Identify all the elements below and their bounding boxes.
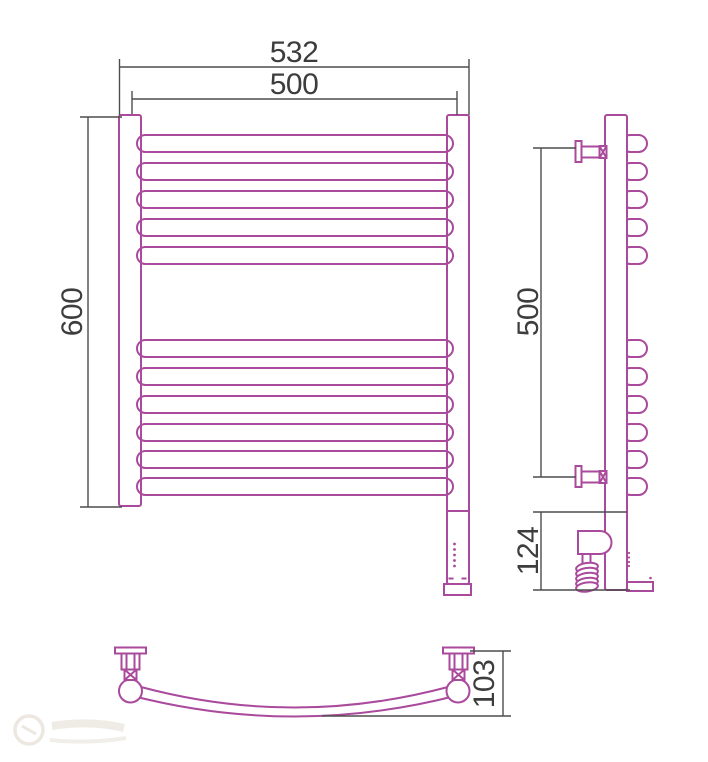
rung xyxy=(137,163,453,180)
front-housing-cap xyxy=(444,584,471,595)
dim-text-bracket-spacing: 500 xyxy=(512,288,545,337)
side-dot xyxy=(649,577,652,580)
curved-rail-bottom-edge xyxy=(133,696,455,717)
dim-text-depth: 103 xyxy=(468,660,501,709)
rung xyxy=(137,396,453,413)
bottom-view xyxy=(115,648,474,717)
watermark xyxy=(15,716,126,744)
bracket-body xyxy=(122,654,140,670)
side-view xyxy=(575,115,653,593)
dim-text-height: 600 xyxy=(56,288,89,337)
rung xyxy=(137,340,453,357)
bracket-body xyxy=(450,654,468,670)
bottom-left-post-section xyxy=(119,680,142,703)
bottom-left-bracket xyxy=(115,648,146,681)
bracket-stem xyxy=(582,147,600,158)
towel-radiator-drawing: 532 500 600 xyxy=(0,0,708,762)
bottom-right-post-section xyxy=(447,680,470,703)
rung xyxy=(137,219,453,236)
bracket-stem xyxy=(582,472,600,483)
rung xyxy=(137,247,453,264)
plug-body xyxy=(578,531,612,554)
dim-text-lower-section: 124 xyxy=(512,527,545,576)
front-indicator-dots xyxy=(449,543,467,580)
technical-drawing-canvas: 532 500 600 xyxy=(0,0,708,762)
coiled-cord xyxy=(575,562,598,593)
rung xyxy=(137,424,453,441)
side-post xyxy=(605,115,627,590)
front-rungs xyxy=(137,135,453,495)
front-view xyxy=(119,115,471,595)
bottom-dimensions: 103 xyxy=(322,651,511,716)
curved-rail-top-edge xyxy=(141,687,448,708)
side-bottom-bracket xyxy=(576,466,607,487)
rung xyxy=(137,478,453,495)
rung xyxy=(137,451,453,468)
rung xyxy=(137,191,453,208)
side-top-bracket xyxy=(576,141,607,162)
rung xyxy=(137,368,453,385)
side-housing-foot xyxy=(627,582,653,591)
dim-text-overall-width: 532 xyxy=(270,36,319,69)
side-indicator-dots xyxy=(628,552,630,567)
rung xyxy=(137,135,453,152)
dim-text-rail-width: 500 xyxy=(270,68,319,101)
